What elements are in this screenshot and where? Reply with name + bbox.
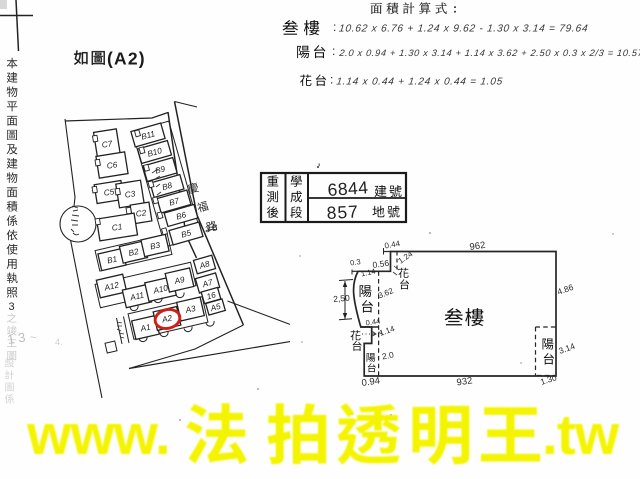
svg-text:C7: C7 — [101, 139, 113, 150]
svg-text:4.: 4. — [55, 337, 63, 347]
svg-text:C6: C6 — [106, 160, 118, 171]
svg-text:10.62 x 6.76 + 1.24 x 9.62 - 1: 10.62 x 6.76 + 1.24 x 9.62 - 1.30 x 3.14… — [338, 24, 588, 35]
svg-text:~: ~ — [30, 332, 36, 344]
svg-text:.tw: .tw — [542, 403, 620, 467]
svg-text:C5: C5 — [103, 187, 115, 198]
svg-text:932: 932 — [456, 375, 473, 388]
svg-text:2.0: 2.0 — [381, 350, 395, 362]
svg-text:0.3: 0.3 — [350, 257, 362, 267]
svg-text:www.: www. — [26, 403, 170, 467]
svg-text:(A2): (A2) — [107, 49, 146, 69]
svg-text::: : — [332, 44, 335, 58]
svg-text:C2: C2 — [135, 208, 147, 219]
svg-text:C3: C3 — [124, 189, 136, 200]
svg-text:3: 3 — [9, 301, 15, 313]
svg-text:1.14 x 0.44 + 1.24 x 0.44 = 1.: 1.14 x 0.44 + 1.24 x 0.44 = 1.05 — [336, 77, 504, 88]
svg-text:962: 962 — [469, 240, 486, 253]
svg-text:1 3: 1 3 — [6, 330, 26, 347]
svg-text:6844: 6844 — [327, 177, 369, 200]
svg-text:2.0 x 0.94 + 1.30 x 3.14 + 1.1: 2.0 x 0.94 + 1.30 x 3.14 + 1.14 x 3.62 +… — [338, 48, 640, 58]
svg-text:3 6: 3 6 — [204, 222, 218, 234]
svg-text:2,50: 2,50 — [333, 293, 351, 304]
svg-text:857: 857 — [326, 201, 359, 223]
svg-text::: : — [330, 73, 333, 87]
svg-text::: : — [453, 2, 457, 16]
svg-text:C1: C1 — [111, 222, 123, 233]
svg-text::: : — [333, 20, 336, 34]
